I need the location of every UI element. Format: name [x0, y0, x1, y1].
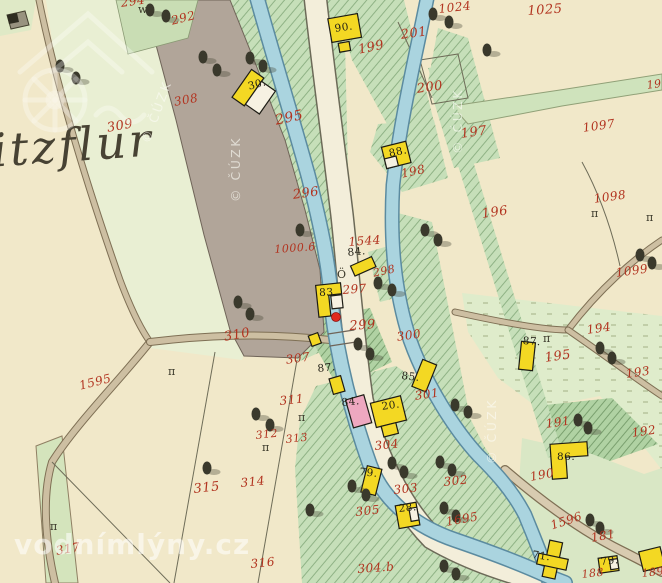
vodnimlyny-watermark-text: vodnímlýny.cz — [14, 528, 250, 561]
map-viewport[interactable]: 29429230830929529615441000.6298297299300… — [0, 0, 662, 583]
building-28 — [395, 502, 420, 528]
cuzk-watermark: © ČÚZK — [450, 88, 465, 154]
cuzk-watermark: © ČÚZK — [228, 136, 243, 202]
mill-marker-dot[interactable] — [332, 313, 341, 322]
building-87b — [519, 341, 536, 370]
building-79b — [598, 556, 619, 573]
cuzk-watermark: © ČÚZK — [484, 398, 499, 464]
vodnimlyny-logo — [0, 0, 180, 140]
